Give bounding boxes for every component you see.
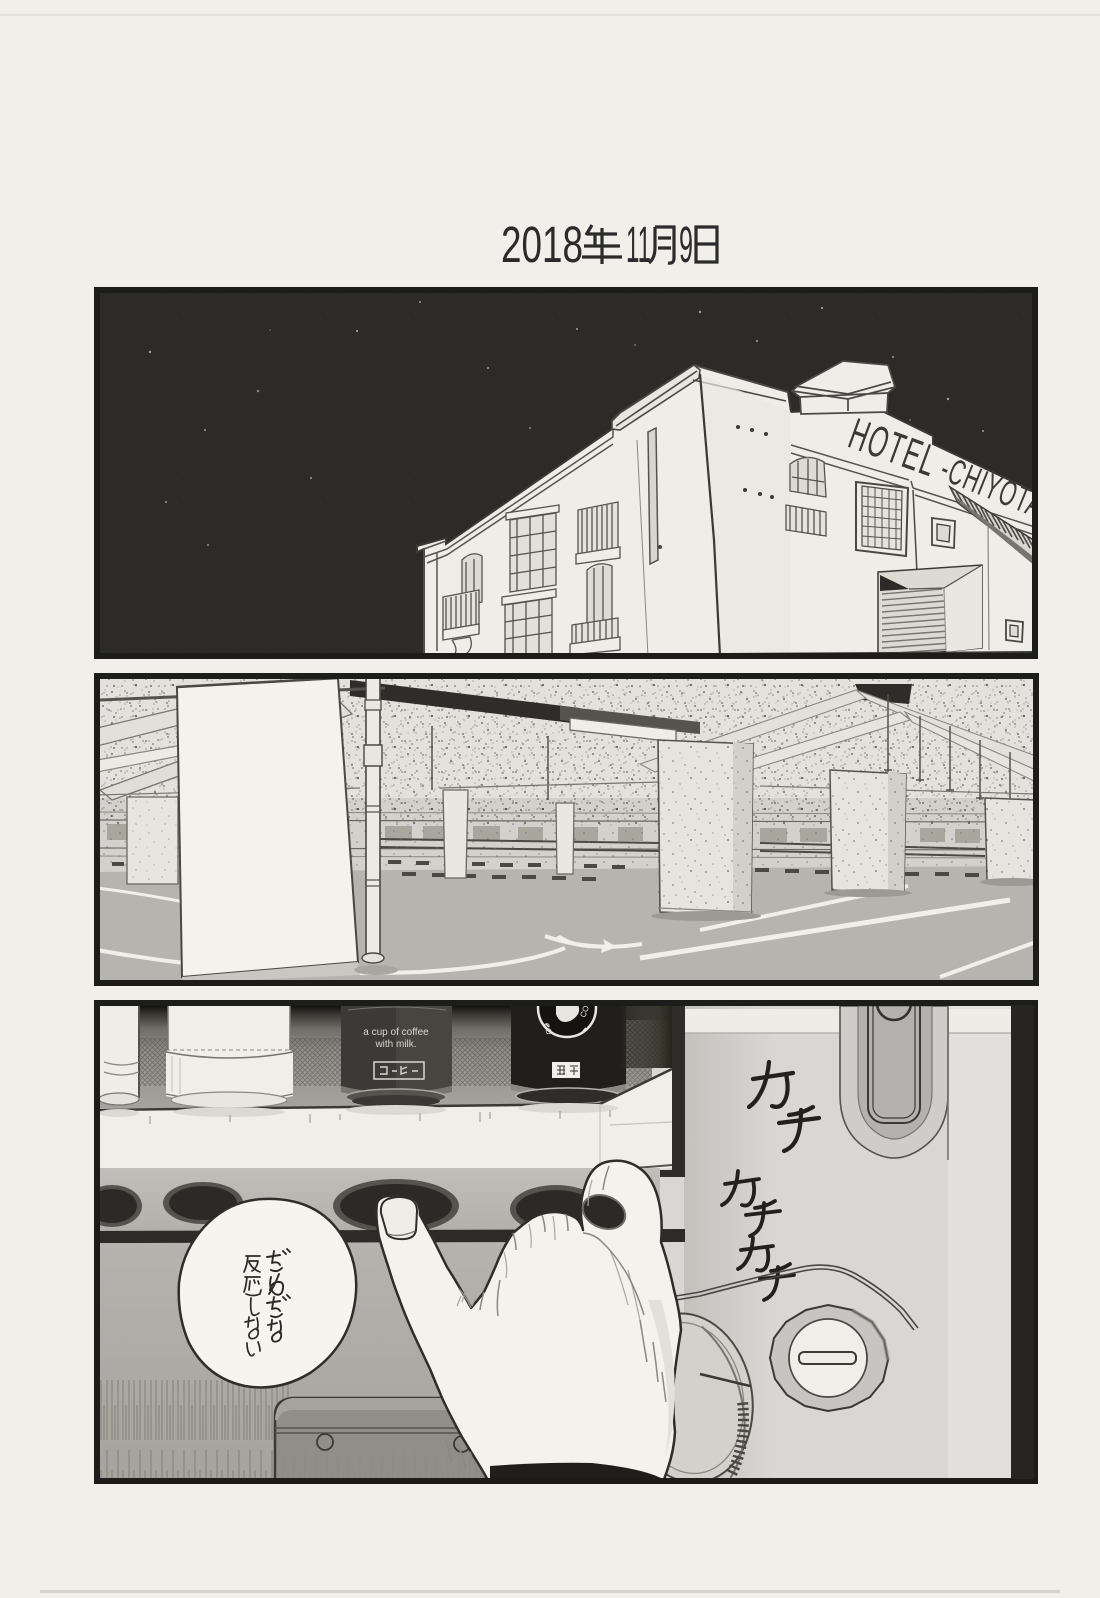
svg-text:a cup of coffee: a cup of coffee: [363, 1027, 429, 1038]
svg-text:with milk.: with milk.: [374, 1039, 416, 1050]
svg-text:9: 9: [679, 216, 693, 273]
svg-text:11: 11: [626, 216, 651, 273]
svg-text:2018: 2018: [501, 216, 583, 273]
